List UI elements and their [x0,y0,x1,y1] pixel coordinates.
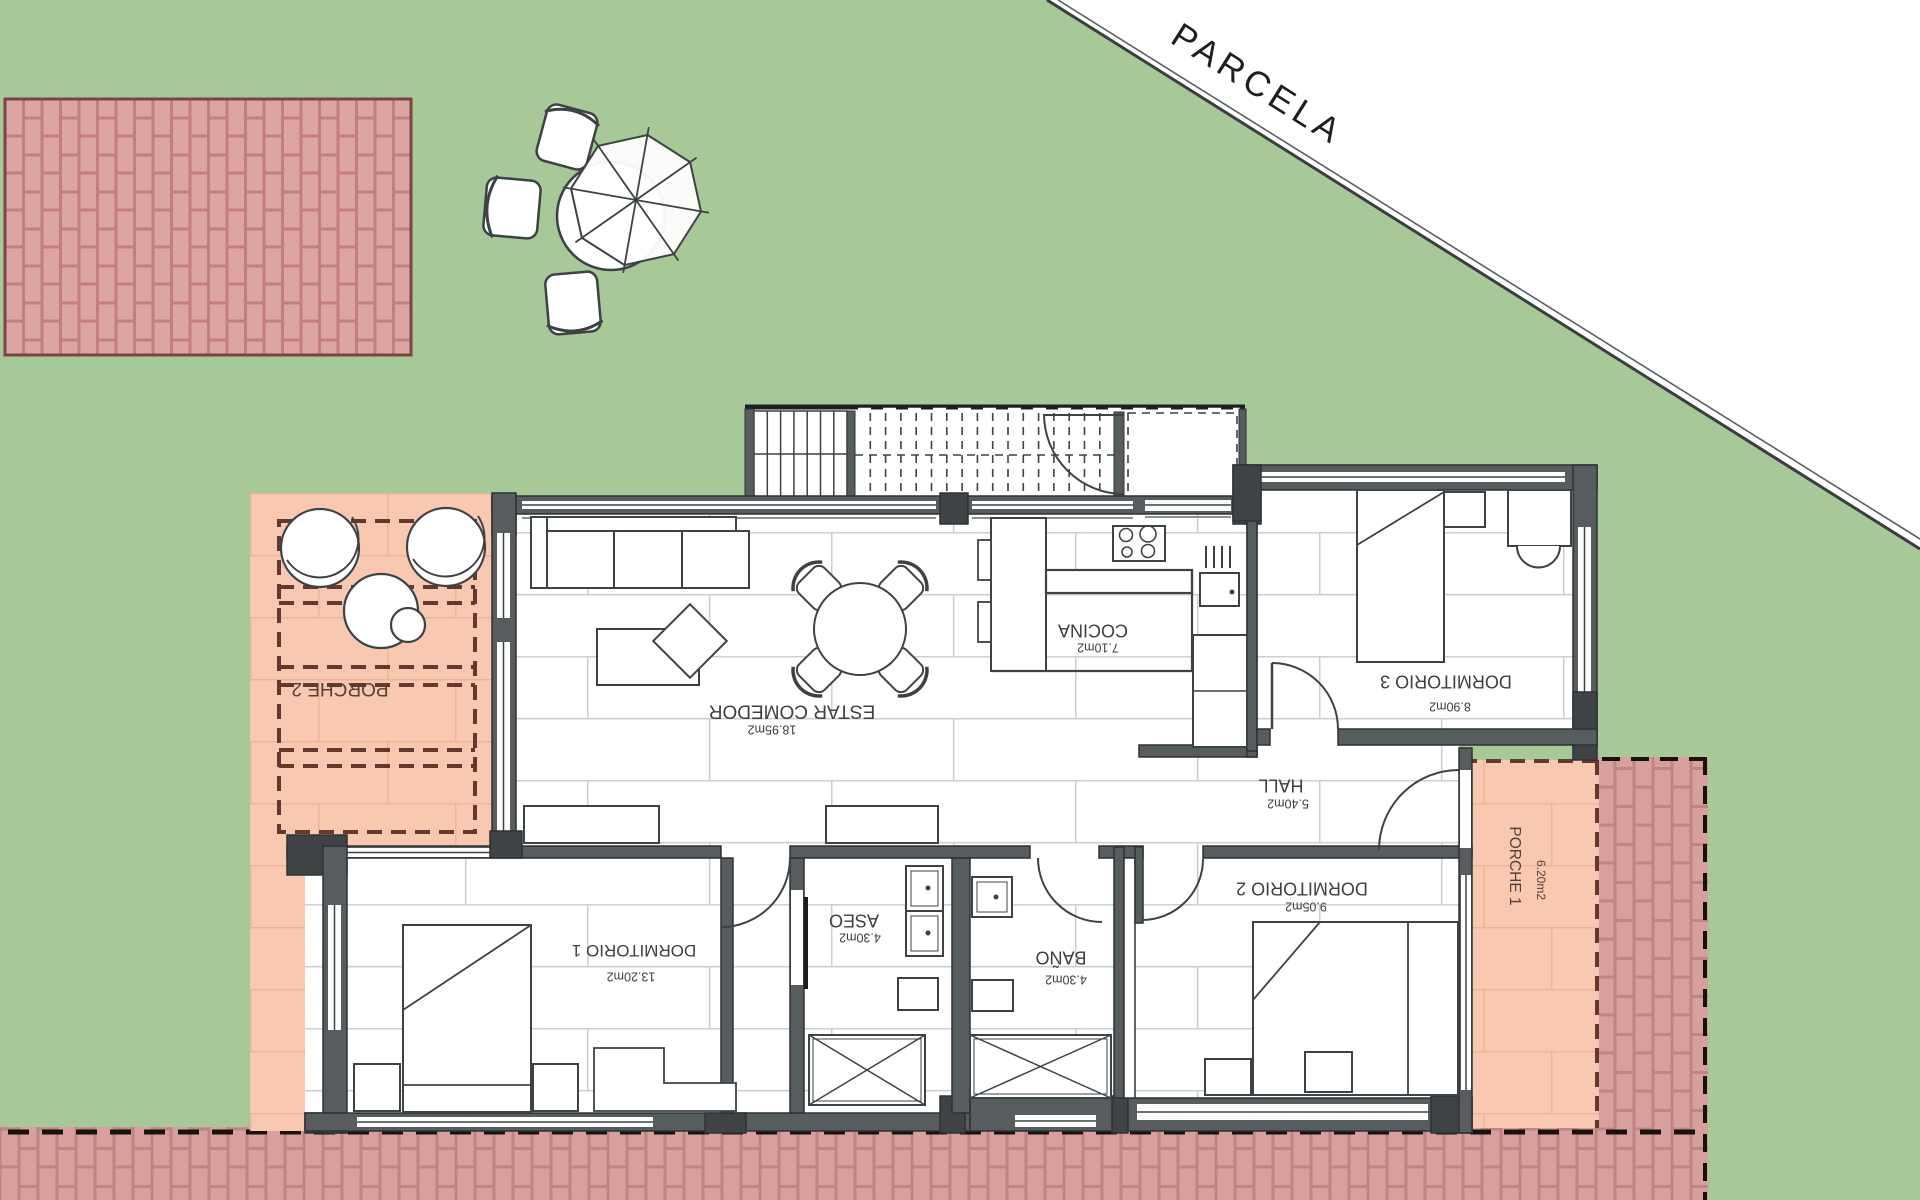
svg-text:5.40m2: 5.40m2 [1267,797,1309,811]
svg-text:13.20m2: 13.20m2 [607,970,656,984]
svg-text:BAÑO: BAÑO [1035,948,1086,969]
svg-text:6.20m2: 6.20m2 [1534,860,1548,900]
svg-text:PORCHE 2: PORCHE 2 [291,678,388,699]
svg-text:PORCHE 1: PORCHE 1 [1506,826,1523,905]
svg-text:DORMITORIO 1: DORMITORIO 1 [572,941,696,960]
svg-text:18.95m2: 18.95m2 [748,723,797,737]
svg-text:DORMITORIO 2: DORMITORIO 2 [1236,879,1368,899]
svg-text:HALL: HALL [1258,776,1303,796]
svg-text:ASEO: ASEO [829,911,879,931]
svg-text:8.90m2: 8.90m2 [1429,700,1471,714]
svg-text:7.10m2: 7.10m2 [1077,641,1119,655]
svg-text:9.05m2: 9.05m2 [1285,900,1327,914]
svg-text:ESTAR COMEDOR: ESTAR COMEDOR [709,700,875,721]
svg-text:4.30m2: 4.30m2 [1045,973,1087,987]
svg-text:4.30m2: 4.30m2 [839,931,881,945]
svg-text:COCINA: COCINA [1058,621,1128,641]
svg-text:DORMITORIO 3: DORMITORIO 3 [1380,672,1512,692]
